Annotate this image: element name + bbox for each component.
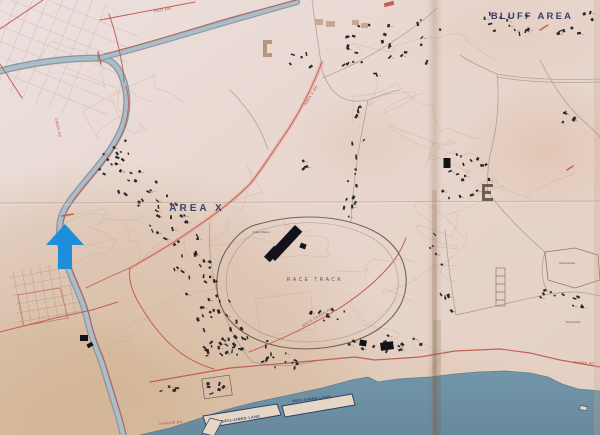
tan-block-1 bbox=[315, 19, 323, 25]
hill-building bbox=[444, 158, 451, 168]
depot-annex bbox=[359, 339, 367, 346]
area-x-label: AREA X bbox=[169, 203, 224, 214]
tan-block-3 bbox=[352, 20, 359, 25]
tan-block-2 bbox=[326, 21, 335, 27]
map-photo: BLUFF AREAAREA XRACE TRACKRECLAIMED LAND… bbox=[0, 0, 600, 435]
bluff-area-label: BLUFF AREA bbox=[491, 11, 573, 22]
tan-block-4 bbox=[361, 23, 368, 28]
race-track-label: RACE TRACK bbox=[287, 277, 343, 283]
golf-course-label: Golf Course bbox=[559, 261, 575, 265]
tennis-club-label: Tennis Club bbox=[566, 320, 581, 324]
west-compound-a bbox=[80, 335, 88, 341]
map-image: BLUFF AREAAREA XRACE TRACKRECLAIMED LAND… bbox=[0, 0, 600, 435]
grand-stand-label: Grand Stand bbox=[252, 230, 269, 234]
